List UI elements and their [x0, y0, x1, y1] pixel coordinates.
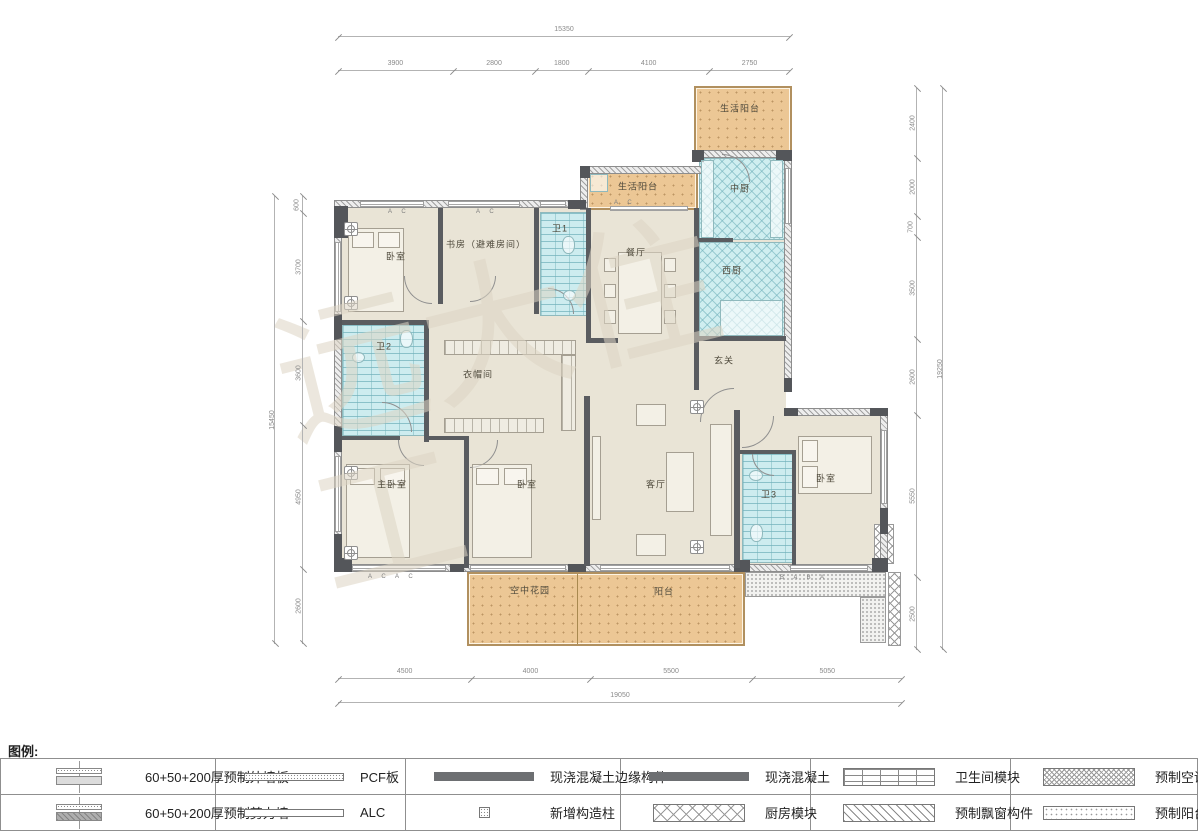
interior-wall: [734, 410, 740, 568]
toilet: [400, 330, 413, 348]
pillow: [802, 440, 818, 462]
prefab-strip: [888, 572, 901, 646]
legend-label: 预制空调板构件: [1155, 767, 1198, 786]
pcf-board-icon: [242, 773, 346, 781]
chair: [664, 284, 676, 298]
cast-in-place-icon: [647, 772, 751, 781]
pillow: [378, 232, 400, 248]
room-label-balcony-top: 生活阳台: [720, 102, 760, 115]
legend-cell: PCF板: [216, 759, 406, 795]
dim-segment: 4500: [338, 678, 471, 679]
sofa: [710, 424, 732, 536]
room-label-closet: 衣帽间: [463, 368, 493, 381]
room-label-balcony-main: 阳台: [654, 585, 674, 598]
dim-bottom-segments: 4500400055005050: [338, 678, 902, 679]
kitchen-counter: [720, 300, 783, 336]
dim-value: 19050: [610, 692, 629, 699]
cip-block: [580, 166, 590, 178]
window: [335, 456, 341, 532]
window: [335, 242, 341, 312]
chair: [604, 310, 616, 324]
dim-value: 19250: [937, 359, 944, 378]
panel-code: B A B A: [780, 575, 828, 581]
shear-wall-panel-icon: [27, 803, 131, 823]
connector-symbol: [344, 296, 358, 310]
dim-segment: 2500: [916, 577, 917, 650]
legend-cell: 现浇混凝土: [621, 759, 811, 795]
dim-bottom-total: 19050: [338, 702, 902, 703]
dim-segment: 4100: [588, 70, 709, 71]
exterior-wall-panel-icon: [27, 767, 131, 787]
cip-block: [334, 426, 342, 452]
dim-segment: 4950: [302, 425, 303, 569]
dim-segment: 2600: [916, 339, 917, 415]
dim-value: 4950: [295, 489, 302, 505]
wardrobe-shelf: [444, 340, 576, 355]
connector-symbol: [344, 546, 358, 560]
dim-value: 3900: [388, 60, 404, 67]
interior-wall: [584, 396, 590, 566]
legend-label: PCF板: [360, 767, 399, 786]
dim-segment: 3600: [302, 321, 303, 425]
washer: [590, 174, 608, 192]
legend-cell: 60+50+200厚预制外墙板: [1, 759, 216, 795]
ac-panel-zone2: [860, 597, 886, 643]
dim-value: 2500: [909, 606, 916, 622]
panel-code: A C A C: [368, 574, 417, 580]
window: [360, 201, 424, 207]
window: [790, 565, 868, 571]
dim-top-segments: 39002800180041002750: [338, 70, 790, 71]
tv-cabinet: [592, 436, 601, 520]
room-label-bedroom-tl: 卧室: [386, 250, 406, 263]
terrace-divider: [577, 574, 578, 644]
room-label-bedroom-mid: 卧室: [517, 478, 537, 491]
legend-cell: 预制阳台构件: [1011, 795, 1197, 831]
cip-block: [568, 200, 586, 209]
floorplan-drawing: 远大住工: [0, 0, 1198, 831]
window: [540, 201, 566, 207]
room-label-bath2: 卫2: [376, 340, 392, 353]
dim-segment: 5500: [590, 678, 753, 679]
dim-segment: 1800: [535, 70, 588, 71]
cip-block: [880, 508, 888, 534]
armchair: [636, 534, 666, 556]
dim-value: 2750: [742, 60, 758, 67]
dim-value: 2000: [909, 179, 916, 195]
ac-panel-icon: [1037, 768, 1141, 786]
room-label-study: 书房（避难房间）: [446, 238, 526, 251]
basin: [563, 290, 576, 301]
new-column-icon: [432, 807, 536, 818]
window: [352, 565, 446, 571]
cip-block: [450, 564, 464, 572]
room-label-dining: 餐厅: [626, 246, 646, 259]
dim-left-total: 15450: [274, 196, 275, 644]
room-label-master: 主卧室: [377, 478, 407, 491]
dim-value: 15450: [269, 410, 276, 429]
dim-value: 5550: [909, 488, 916, 504]
sliding-door: [600, 565, 730, 571]
interior-wall: [694, 336, 786, 341]
interior-wall: [438, 208, 443, 304]
cip-block: [872, 558, 888, 572]
dim-segment: 3700: [302, 213, 303, 320]
window: [610, 206, 688, 211]
dim-segment: 5550: [916, 415, 917, 577]
connector-symbol: [344, 222, 358, 236]
legend-cell: 现浇混凝土边缘构件: [406, 759, 621, 795]
basin: [352, 352, 365, 363]
chair: [664, 258, 676, 272]
kitchen-counter: [770, 160, 783, 238]
dim-value: 3700: [295, 259, 302, 275]
room-label-living: 客厅: [646, 478, 666, 491]
dim-value: 2600: [295, 598, 302, 614]
interior-wall: [699, 238, 733, 242]
toilet: [750, 524, 763, 542]
dim-value: 3600: [295, 365, 302, 381]
legend-cell: 卫生间模块: [811, 759, 1011, 795]
dim-value: 2800: [486, 60, 502, 67]
side-table-symbol: [690, 400, 704, 414]
dim-segment: 700: [916, 216, 917, 236]
dim-segment: 2600: [302, 569, 303, 644]
chair: [604, 284, 616, 298]
bathroom-module-icon: [837, 768, 941, 786]
pillow: [476, 468, 499, 485]
legend-cell: 新增构造柱: [406, 795, 621, 831]
room-label-sky-garden: 空中花园: [510, 584, 550, 597]
panel-code: A C: [388, 209, 410, 215]
dim-segment: 4000: [471, 678, 589, 679]
legend-cell: 60+50+200厚预制剪力墙: [1, 795, 216, 831]
dim-segment: 2800: [453, 70, 535, 71]
foyer-area: [697, 340, 785, 390]
bay-window-icon: [837, 804, 941, 822]
dim-value: 3500: [909, 280, 916, 296]
legend-cell: ALC: [216, 795, 406, 831]
side-table-symbol: [690, 540, 704, 554]
interior-wall: [342, 320, 426, 325]
interior-wall: [694, 208, 699, 390]
dining-table: [618, 252, 662, 334]
room-label-foyer: 玄关: [714, 354, 734, 367]
dim-value: 600: [293, 199, 300, 211]
interior-wall: [792, 450, 796, 566]
cip-block: [334, 558, 352, 572]
chair: [664, 310, 676, 324]
panel-code: A C: [476, 209, 498, 215]
dim-right-total: 19250: [942, 88, 943, 650]
interior-wall: [586, 338, 618, 343]
window: [785, 168, 791, 224]
dim-left-segments: 6003700360049502600: [302, 196, 303, 644]
legend-label: 厨房模块: [765, 803, 817, 822]
interior-wall: [424, 320, 429, 442]
dim-top-total: 15350: [338, 36, 790, 37]
dim-segment: 2000: [916, 158, 917, 216]
dim-value: 700: [907, 221, 914, 233]
interior-wall: [586, 208, 591, 342]
dim-segment: 15450: [274, 196, 275, 644]
room-label-bath3: 卫3: [761, 488, 777, 501]
window: [881, 430, 887, 504]
room-label-bath1: 卫1: [552, 222, 568, 235]
connector-symbol: [344, 466, 358, 480]
window: [470, 565, 566, 571]
interior-wall: [534, 208, 539, 314]
terrace-balcony: [467, 572, 745, 646]
room-label-kitchen-w: 西厨: [722, 264, 742, 277]
legend-label: ALC: [360, 805, 385, 820]
kitchen-counter: [701, 160, 714, 238]
toilet: [562, 236, 575, 254]
cip-block: [784, 408, 798, 416]
window: [448, 201, 520, 207]
kitchen-module-icon: [647, 804, 751, 822]
room-label-balcony-strip: 生活阳台: [618, 180, 658, 193]
dim-value: 4100: [641, 60, 657, 67]
alc-board-icon: [242, 809, 346, 817]
dim-segment: 15350: [338, 36, 790, 37]
cast-in-place-edge-icon: [432, 772, 536, 781]
interior-wall: [342, 436, 400, 440]
room-label-kitchen-cn: 中厨: [730, 182, 750, 195]
dim-right-segments: 240020007003500260055502500: [916, 88, 917, 650]
dim-value: 15350: [554, 26, 573, 33]
interior-wall: [464, 436, 469, 568]
dim-value: 2400: [909, 115, 916, 131]
dim-value: 2600: [909, 369, 916, 385]
dim-value: 5500: [663, 668, 679, 675]
balcony-member-icon: [1037, 806, 1141, 820]
balcony-top: [694, 86, 792, 156]
dim-value: 4000: [523, 668, 539, 675]
dim-segment: 2400: [916, 88, 917, 158]
dim-value: 5050: [819, 668, 835, 675]
coffee-table: [666, 452, 694, 512]
dim-segment: 19250: [942, 88, 943, 650]
room-label-bedroom-r: 卧室: [816, 472, 836, 485]
dim-segment: 3500: [916, 237, 917, 339]
cip-block: [784, 378, 792, 392]
wardrobe-shelf: [444, 418, 544, 433]
dim-value: 4500: [397, 668, 413, 675]
legend-label: 预制阳台构件: [1155, 803, 1198, 822]
interior-wall: [424, 436, 468, 440]
wardrobe-shelf: [561, 355, 576, 431]
dim-segment: 3900: [338, 70, 453, 71]
dim-segment: 5050: [752, 678, 902, 679]
legend-cell: 厨房模块: [621, 795, 811, 831]
dim-value: 1800: [554, 60, 570, 67]
panel-code: A C: [614, 200, 636, 206]
dim-segment: 19050: [338, 702, 902, 703]
armchair: [636, 404, 666, 426]
legend-label: 新增构造柱: [550, 803, 615, 822]
exterior-wall: [580, 166, 702, 174]
cip-block: [334, 314, 342, 340]
legend-cell: 预制空调板构件: [1011, 759, 1197, 795]
legend-cell: 预制飘窗构件: [811, 795, 1011, 831]
legend-table: 60+50+200厚预制外墙板 PCF板 现浇混凝土边缘构件 现浇混凝土 卫生间…: [0, 758, 1198, 831]
basin: [749, 470, 763, 481]
dim-segment: 2750: [709, 70, 790, 71]
chair: [604, 258, 616, 272]
cip-block: [870, 408, 888, 416]
